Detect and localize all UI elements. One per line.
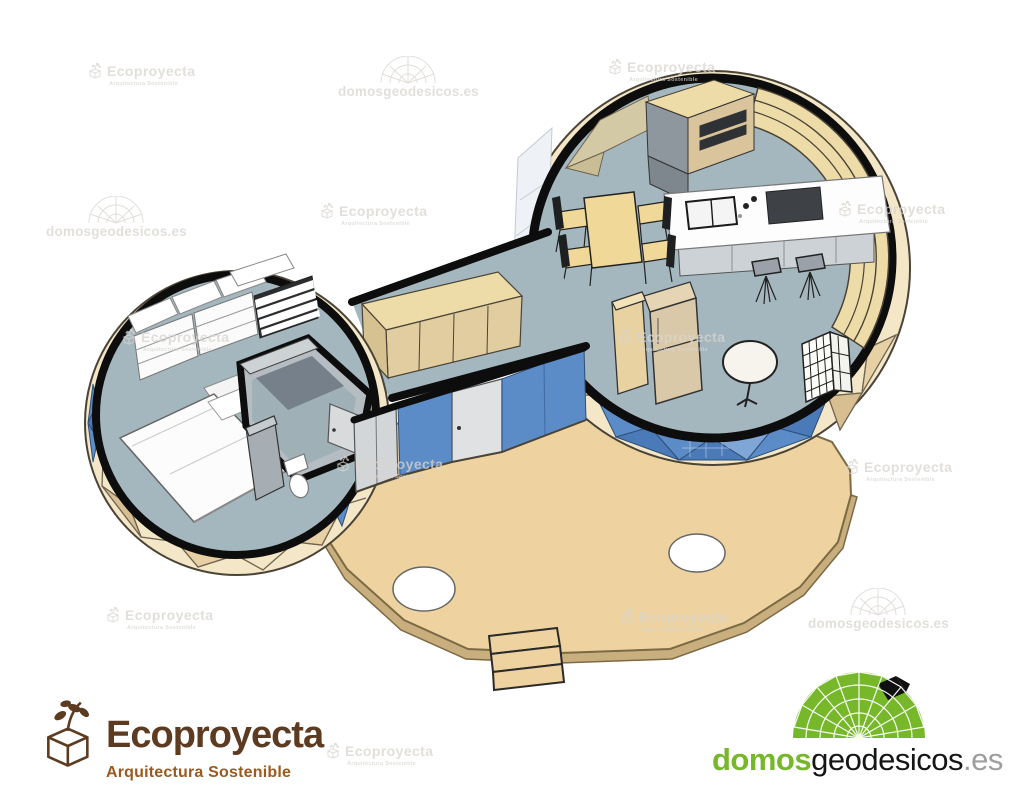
terrace-opening-right (669, 534, 725, 572)
terrace-opening-left (393, 567, 455, 611)
cooktop (766, 187, 823, 224)
domosgeodesicos-logo: domosgeodesicos.es (712, 658, 1014, 778)
ecoproyecta-tagline: Arquitectura Sostenible (106, 764, 323, 782)
ecoproyecta-logo: Ecoproyecta Arquitectura Sostenible (44, 698, 323, 782)
page: Ecoproyecta Arquitectura Sostenible domo… (0, 0, 1024, 792)
left-dome (85, 254, 389, 575)
entry-door (452, 379, 502, 462)
dining-table (584, 192, 642, 268)
domosgeodesicos-wordmark: domosgeodesicos.es (712, 742, 1003, 778)
lattice-screen (802, 332, 852, 402)
geodesic-dome-icon (784, 658, 934, 740)
ecoproyecta-wordmark: Ecoproyecta (106, 714, 323, 757)
ecoproyecta-plant-cube-icon (44, 698, 96, 768)
terrace-steps (489, 628, 564, 690)
pantry-and-fridge (612, 282, 702, 404)
